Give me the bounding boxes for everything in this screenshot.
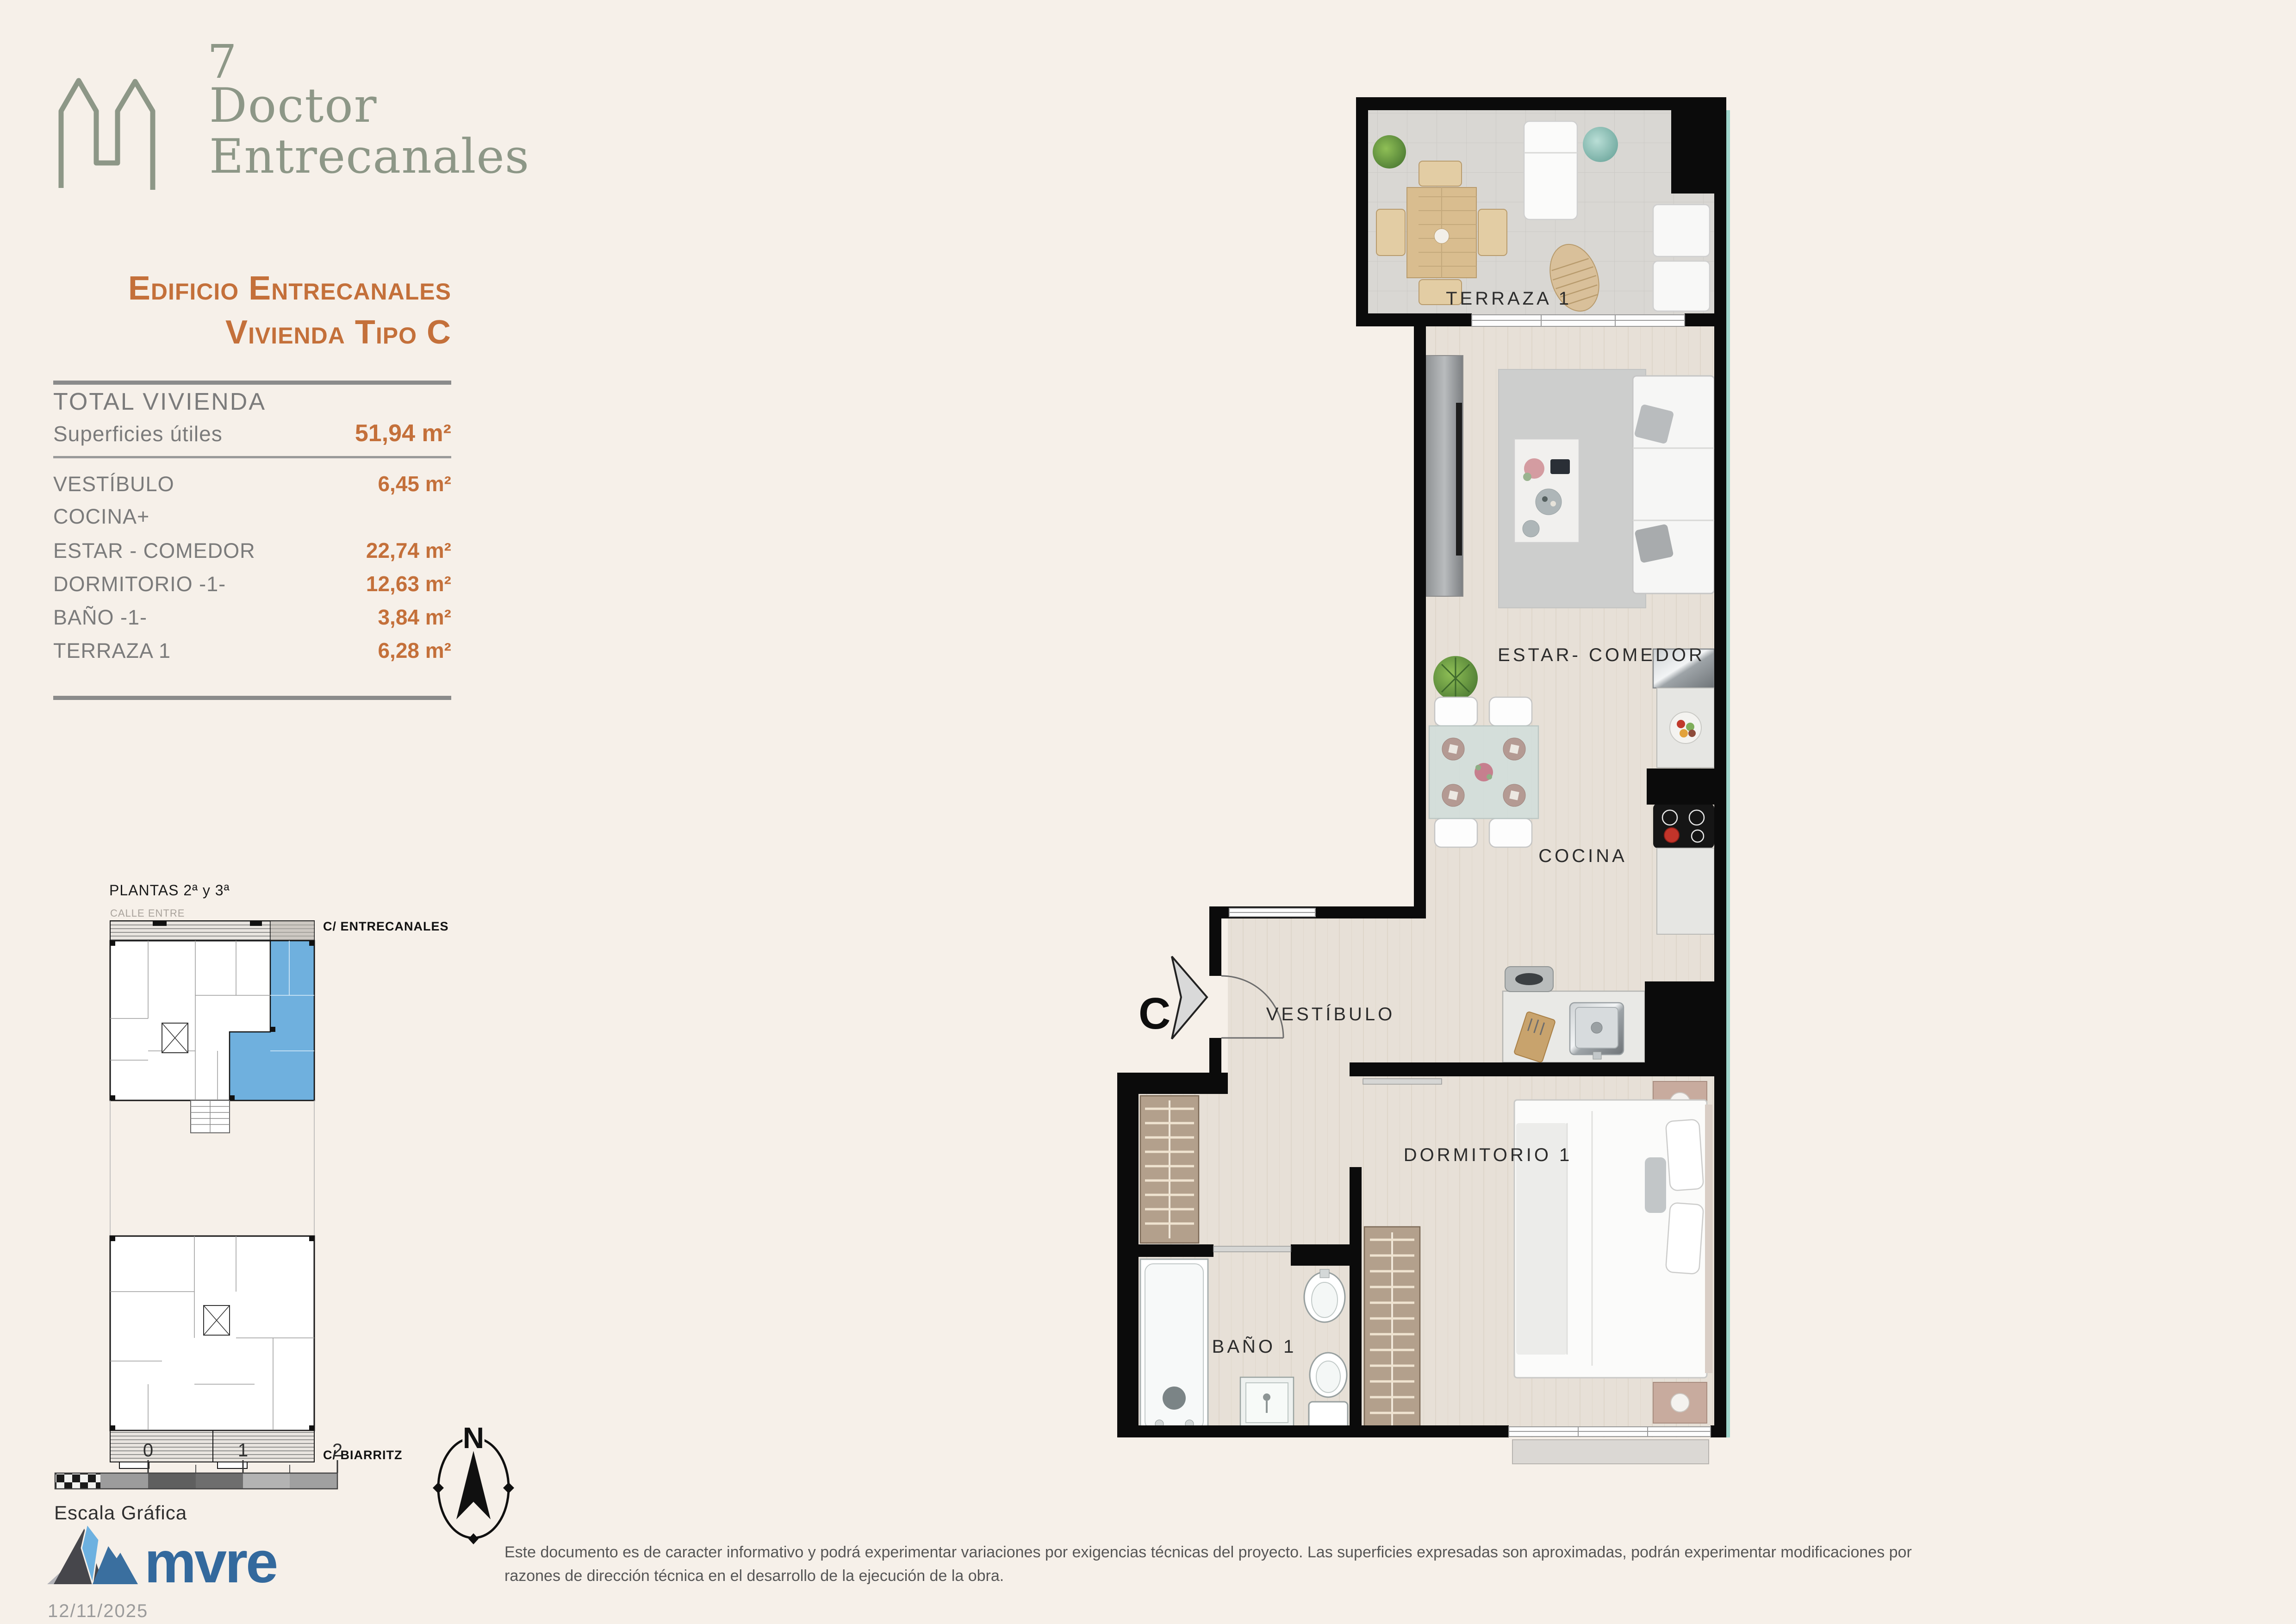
lounge-chair [1524, 121, 1577, 219]
tv-icon [1456, 403, 1462, 556]
entrance-marker: C [1139, 956, 1207, 1039]
room-value: 6,28 m² [378, 638, 451, 663]
pillow [1634, 524, 1674, 563]
lounge-chair [1653, 205, 1710, 256]
area-table: VESTÍBULO 6,45 m² COCINA+ ESTAR - COMEDO… [53, 471, 451, 671]
entrance-arrow-icon [1172, 956, 1207, 1039]
area-row: TERRAZA 1 6,28 m² [53, 638, 451, 671]
counter [1657, 848, 1714, 934]
keyplan-lower-block [110, 1236, 314, 1468]
area-row: COCINA+ [53, 505, 451, 538]
room-label: VESTÍBULO [53, 472, 174, 496]
room-label: TERRAZA 1 [53, 639, 171, 663]
chair [1489, 697, 1532, 726]
mvre-wordmark: mvre [144, 1530, 276, 1595]
lamp-icon [1671, 1393, 1689, 1412]
headboard [1705, 1105, 1712, 1373]
summary-label: Superficies útiles [53, 421, 223, 446]
floorplan: C TERRAZA 1 ESTAR- COMEDOR COCINA VESTÍB… [1111, 83, 1759, 1472]
keyplan-title: PLANTAS 2ª y 3ª [109, 882, 230, 899]
label-cocina: COCINA [1538, 846, 1627, 866]
label-estar: ESTAR- COMEDOR [1498, 645, 1705, 665]
mvre-logo: mvre [46, 1524, 287, 1596]
scale-tick-0: 0 [143, 1440, 153, 1461]
room-value: 22,74 m² [366, 538, 451, 563]
plant-icon [1583, 127, 1618, 162]
scale-bar: 0 1 2 Escala Gráfica [49, 1435, 465, 1532]
room-label: COCINA+ [53, 505, 149, 529]
chair [1419, 161, 1462, 186]
room-value: 6,45 m² [378, 471, 451, 496]
area-row: DORMITORIO -1- 12,63 m² [53, 571, 451, 605]
area-row: VESTÍBULO 6,45 m² [53, 471, 451, 505]
street-label-entrecanales: C/ ENTRECANALES [323, 919, 449, 933]
room-value: 3,84 m² [378, 605, 451, 630]
pillow [1645, 1157, 1666, 1213]
scale-caption: Escala Gráfica [54, 1502, 187, 1524]
pillow [1666, 1119, 1704, 1191]
chair [1435, 818, 1477, 847]
area-row: ESTAR - COMEDOR 22,74 m² [53, 538, 451, 571]
divider-top [53, 381, 451, 385]
disclaimer-line1: Este documento es de caracter informativ… [504, 1543, 1912, 1561]
north-compass: N [433, 1422, 516, 1547]
room-label: ESTAR - COMEDOR [53, 539, 255, 563]
cooktop [1653, 804, 1714, 848]
label-vestibulo: VESTÍBULO [1266, 1004, 1395, 1024]
pillow [1666, 1203, 1704, 1274]
label-bano: BAÑO 1 [1212, 1336, 1297, 1357]
brand-name-line2: Entrecanales [209, 133, 529, 181]
disclaimer-line2: razones de dirección técnica en el desar… [504, 1567, 1004, 1585]
label-dormitorio: DORMITORIO 1 [1404, 1145, 1573, 1165]
brand-name-line1: Doctor [209, 82, 377, 130]
north-label: N [463, 1422, 484, 1455]
glazing-line [1726, 110, 1730, 1437]
divider-mid [53, 456, 451, 458]
mvre-mountain-blue [93, 1546, 138, 1584]
keyplan: PLANTAS 2ª y 3ª CALLE ENTRE C/ ENTRECANA… [79, 875, 458, 1486]
summary-value: 51,94 m² [355, 419, 451, 447]
scale-tick-1: 1 [238, 1440, 248, 1461]
lounge-chair [1653, 261, 1710, 311]
tablet-icon [1550, 459, 1570, 474]
chair [1489, 818, 1532, 847]
entrance-letter: C [1139, 989, 1170, 1038]
room-label: BAÑO -1- [53, 606, 147, 630]
disclaimer: Este documento es de caracter informativ… [504, 1541, 2268, 1588]
north-arrow-icon [456, 1451, 491, 1519]
fruit-bowl-icon [1670, 712, 1701, 743]
chair [1376, 209, 1405, 256]
page-title-line2: Vivienda Tipo C [53, 311, 451, 355]
summary-row: Superficies útiles 51,94 m² [53, 419, 451, 447]
brand-towers-icon [55, 52, 203, 191]
street-label-top: CALLE ENTRE [110, 907, 185, 919]
plant-icon [1373, 135, 1406, 169]
shower-drain-icon [1163, 1387, 1186, 1410]
total-heading: TOTAL VIVIENDA [53, 388, 266, 416]
page-title-line1: Edificio Entrecanales [53, 267, 451, 311]
scale-tick-2: 2 [332, 1440, 342, 1461]
page-title: Edificio Entrecanales Vivienda Tipo C [53, 267, 451, 355]
room-label: DORMITORIO -1- [53, 572, 226, 596]
chair [1478, 209, 1507, 256]
keyplan-upper-block [110, 921, 314, 1133]
area-row: BAÑO -1- 3,84 m² [53, 605, 451, 638]
plan-sheet: { "brand": {"number":"7","line1":"Doctor… [0, 0, 2296, 1624]
document-date: 12/11/2025 [48, 1601, 148, 1622]
chair [1435, 697, 1477, 726]
room-value: 12,63 m² [366, 571, 451, 596]
label-terraza: TERRAZA 1 [1446, 288, 1572, 309]
divider-bottom [53, 696, 451, 700]
